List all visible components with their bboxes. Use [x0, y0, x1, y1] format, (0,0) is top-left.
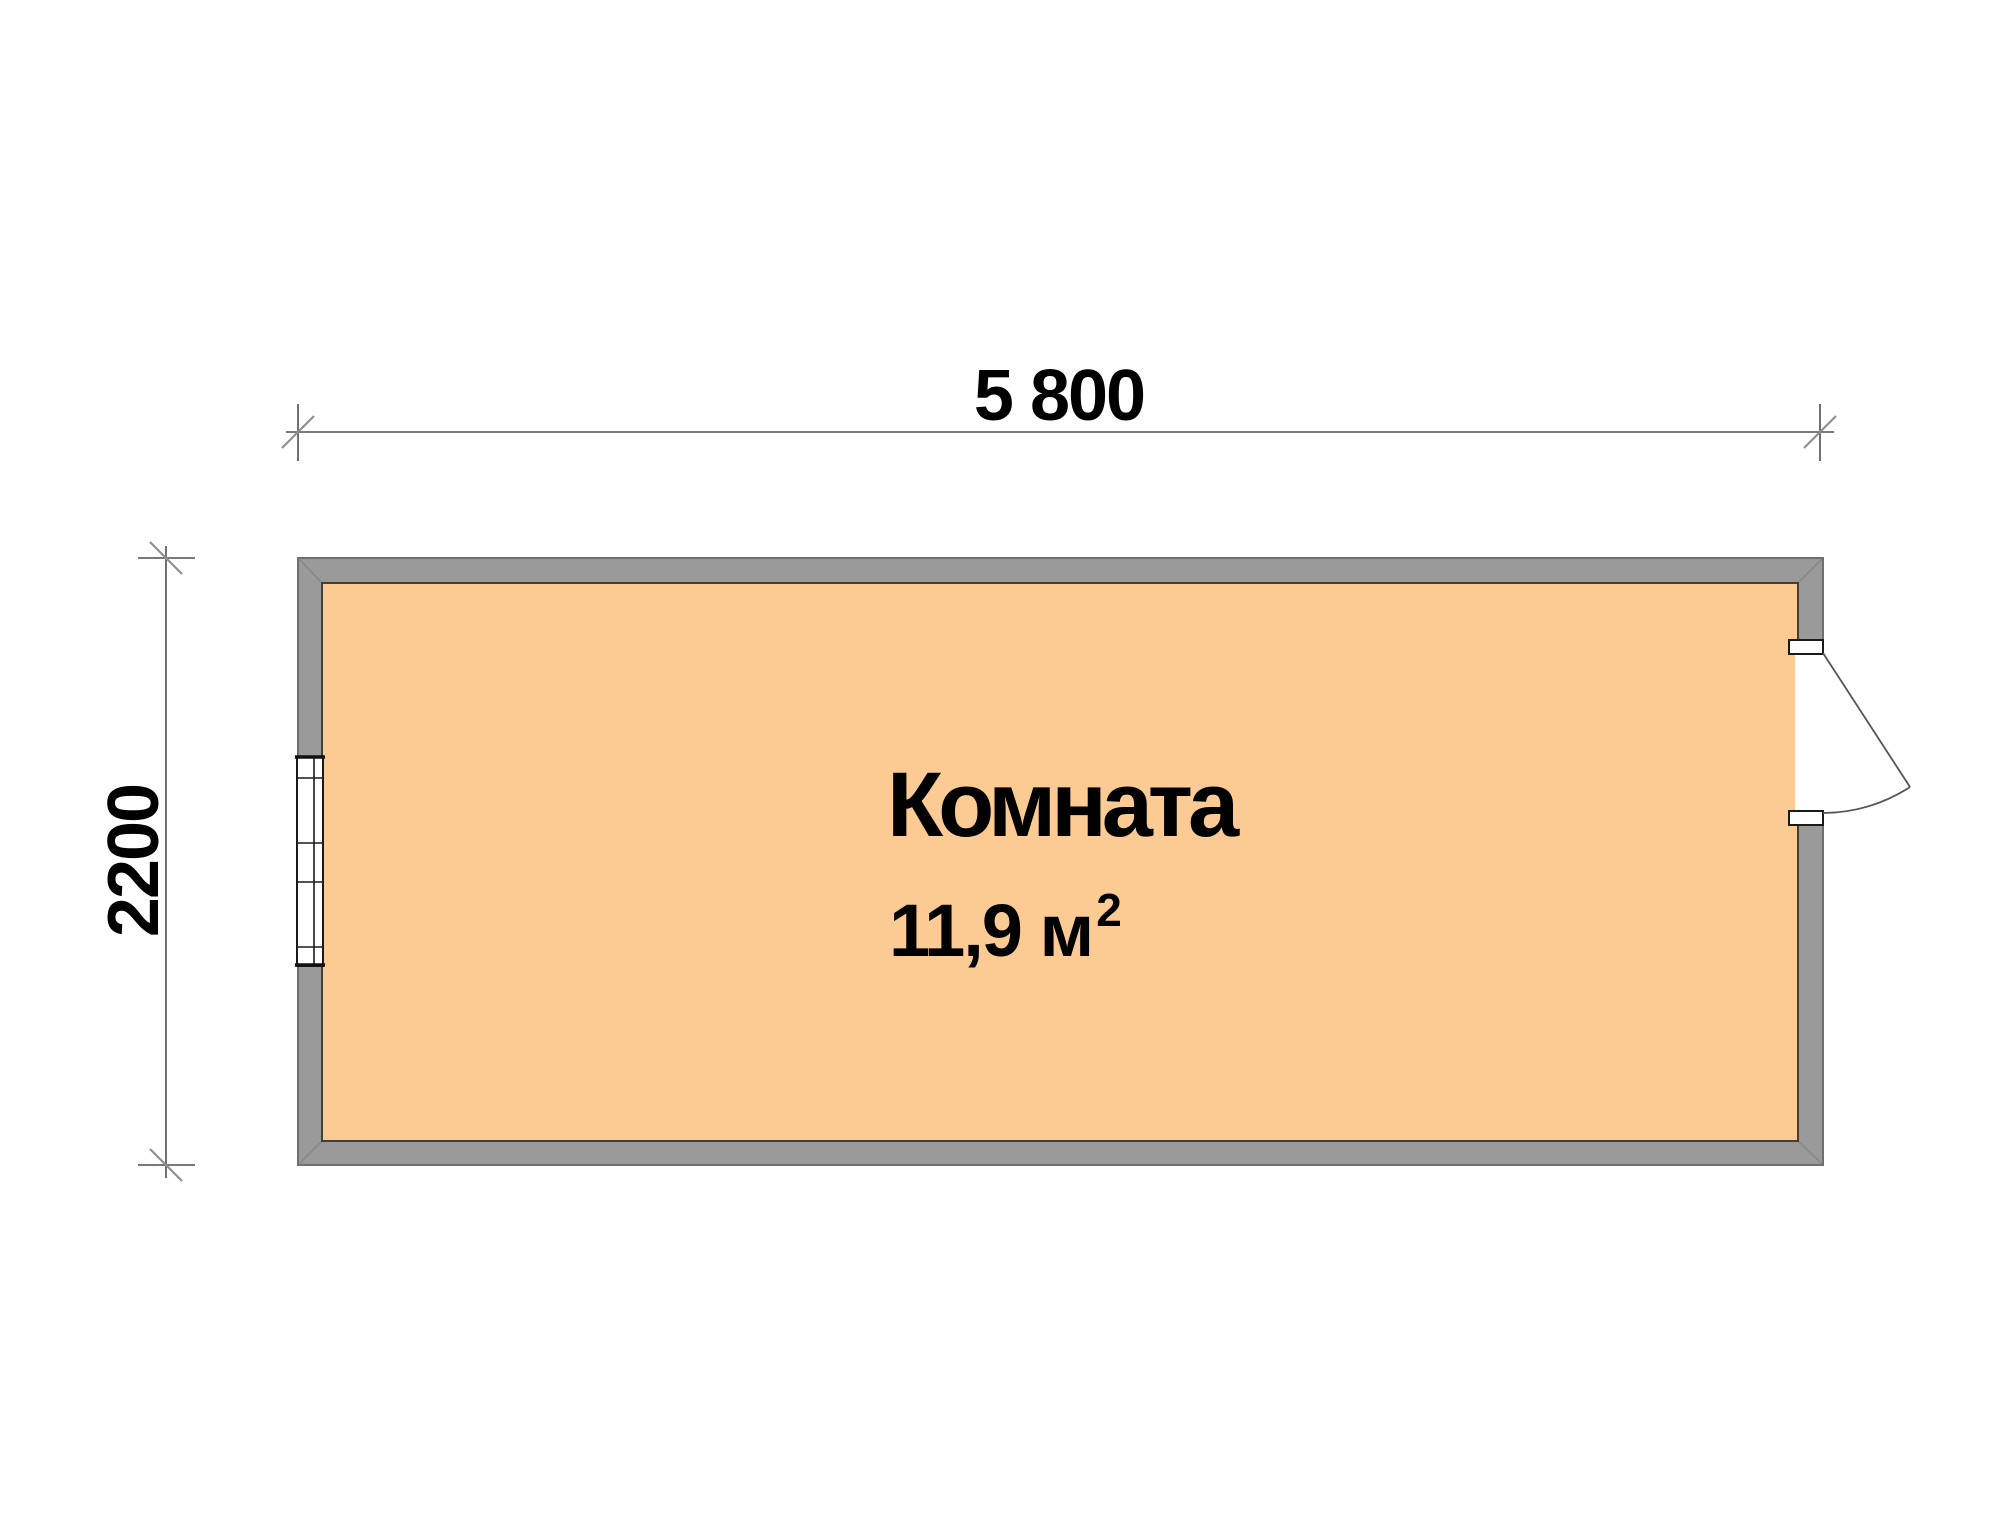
room-area-label: 11,9 м2 — [889, 884, 1120, 972]
door-opening — [1795, 645, 1826, 820]
room-floor — [322, 583, 1798, 1141]
room-area-value: 11,9 м — [889, 889, 1092, 972]
door-icon — [1789, 640, 1910, 825]
room — [298, 558, 1823, 1165]
height-dimension-label: 2200 — [94, 785, 174, 937]
window-frame — [297, 757, 323, 966]
door-jamb-bottom — [1789, 811, 1823, 825]
door-swing-arc — [1823, 787, 1910, 813]
room-area-superscript: 2 — [1096, 884, 1120, 936]
width-dimension-label: 5 800 — [974, 356, 1144, 436]
top-dimension: 5 800 — [282, 356, 1836, 461]
left-dimension: 2200 — [94, 542, 195, 1181]
floor-plan-canvas: 5 800 2200 — [0, 0, 2000, 1538]
window-icon — [295, 757, 325, 966]
door-jamb-top — [1789, 640, 1823, 654]
room-name-label: Комната — [887, 754, 1240, 856]
floor-plan-drawing: 5 800 2200 — [0, 0, 2000, 1538]
door-leaf — [1823, 653, 1910, 787]
